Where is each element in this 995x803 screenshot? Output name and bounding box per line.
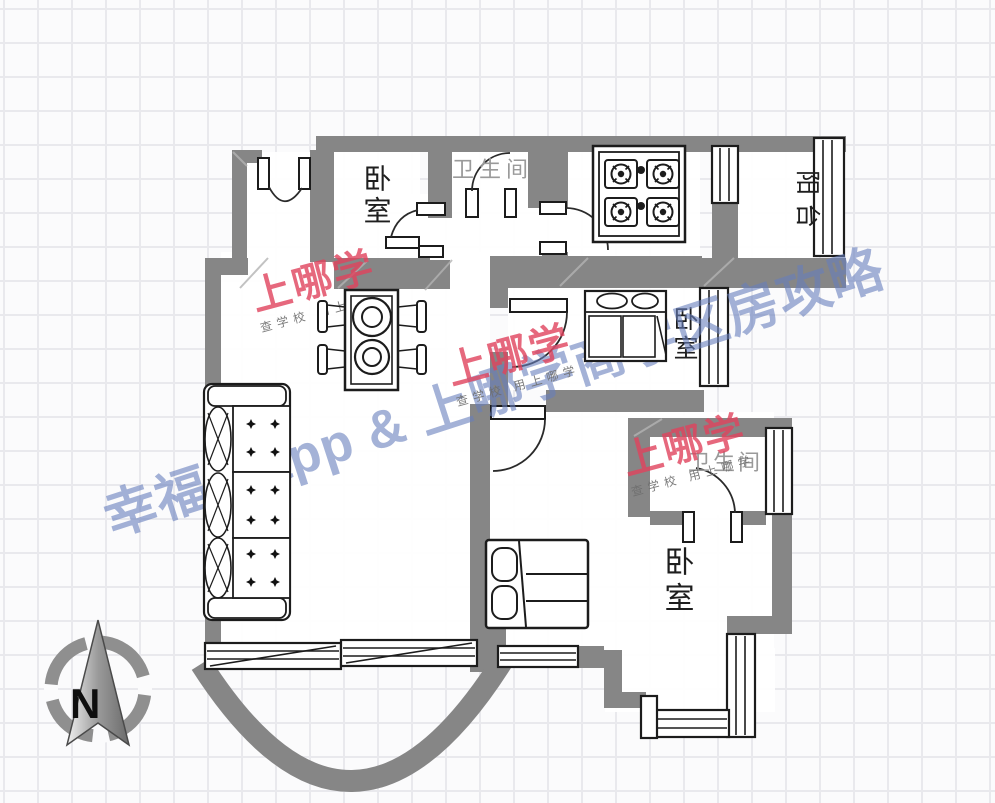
wardrobe-icon [585, 291, 666, 361]
compass-north-label: N [70, 680, 100, 727]
gas-stove-icon [593, 146, 685, 242]
dining-table-icon [318, 290, 426, 390]
sofa-icon [204, 384, 290, 620]
compass-rose: N [40, 614, 158, 766]
floorplan-canvas: 卧室 卫生间 阳台 卧室 卫生间 卧室 幸福里app & 上哪学商学区房攻略 上… [0, 0, 995, 803]
double-bed-icon [486, 540, 588, 628]
